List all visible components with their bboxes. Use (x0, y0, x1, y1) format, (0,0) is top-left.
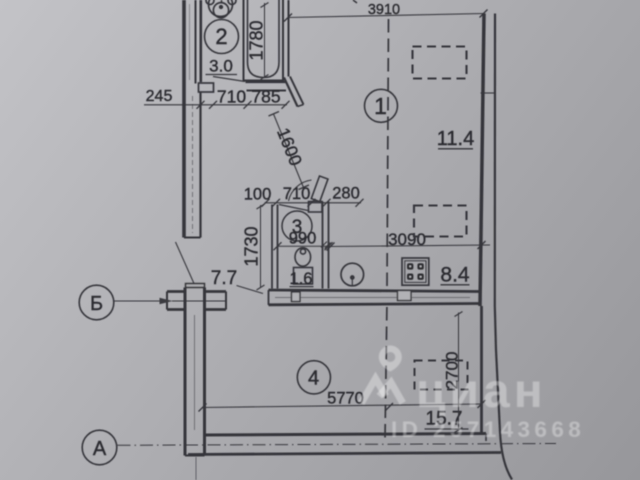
svg-text:710: 710 (283, 185, 311, 203)
svg-text:8.4: 8.4 (440, 264, 470, 287)
svg-text:2: 2 (215, 24, 227, 49)
svg-text:циан: циан (416, 365, 547, 418)
svg-text:1.6: 1.6 (290, 270, 313, 288)
svg-text:245: 245 (146, 88, 173, 105)
svg-text:1780: 1780 (247, 20, 267, 60)
svg-text:3.0: 3.0 (209, 57, 233, 76)
svg-text:ID 257143668: ID 257143668 (391, 417, 585, 442)
svg-text:7.7: 7.7 (211, 268, 237, 289)
svg-text:1: 1 (374, 93, 387, 119)
svg-text:4: 4 (308, 368, 319, 390)
svg-text:Б: Б (90, 293, 103, 315)
svg-text:5770: 5770 (327, 390, 364, 408)
svg-text:280: 280 (332, 185, 360, 203)
svg-text:785: 785 (251, 87, 280, 107)
svg-text:A: A (93, 438, 107, 460)
svg-text:710: 710 (217, 87, 246, 107)
svg-text:990: 990 (289, 230, 317, 248)
svg-text:1730: 1730 (242, 226, 262, 266)
svg-text:11.4: 11.4 (437, 128, 474, 150)
svg-text:100: 100 (244, 186, 272, 204)
